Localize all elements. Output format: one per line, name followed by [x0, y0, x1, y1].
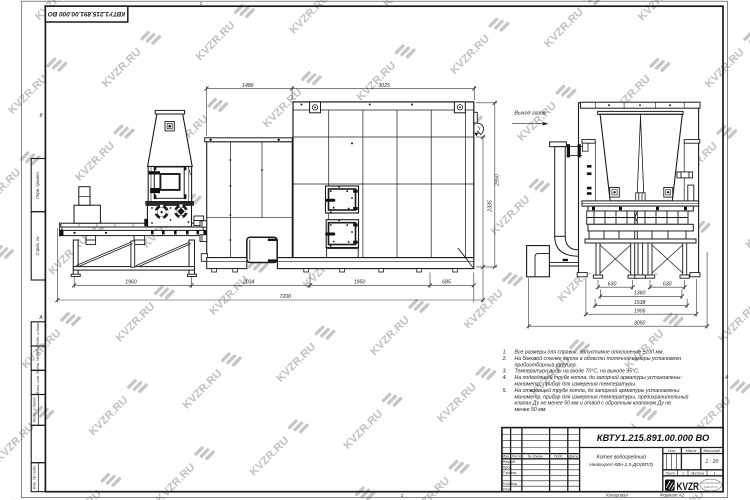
svg-text:Температура воды на входе 70°С: Температура воды на входе 70°С, на выход… [515, 369, 640, 375]
svg-text:На подводящей трубе котла, до: На подводящей трубе котла, до запорной а… [515, 374, 683, 381]
svg-text:Формат А2: Формат А2 [660, 492, 685, 497]
svg-text:Взам. инв. №: Взам. инв. № [35, 369, 40, 394]
svg-text:А: А [724, 375, 729, 381]
svg-text:манометр, прибор для измерения: манометр, прибор для измерения температу… [515, 393, 689, 400]
svg-text:2950: 2950 [495, 174, 501, 187]
svg-text:Все размеры для справок, допус: Все размеры для справок, допустимое откл… [515, 350, 665, 356]
svg-text:Справ. №: Справ. № [35, 236, 40, 255]
svg-text:Подп. и дата: Подп. и дата [35, 321, 40, 347]
svg-text:1538: 1538 [634, 300, 646, 306]
svg-text:Изм.: Изм. [502, 455, 510, 459]
svg-text:Инв. № подл.: Инв. № подл. [32, 465, 37, 490]
svg-text:2.: 2. [502, 356, 507, 362]
svg-text:Утв.: Утв. [503, 488, 511, 492]
svg-text:Лист: Лист [664, 472, 674, 476]
svg-text:Лит.: Лит. [667, 449, 676, 453]
svg-text:1 : 20: 1 : 20 [705, 459, 718, 465]
svg-text:Котел водогрейный: Котел водогрейный [597, 453, 646, 460]
svg-text:685: 685 [442, 280, 451, 286]
svg-text:4.: 4. [503, 375, 507, 381]
svg-text:пробоотборный штуцер.: пробоотборный штуцер. [515, 361, 578, 368]
svg-text:Копировал: Копировал [606, 492, 628, 497]
svg-text:3025: 3025 [378, 83, 390, 89]
svg-text:Дата: Дата [568, 455, 578, 459]
svg-text:На боковой стенке котла в обла: На боковой стенке котла в области топочн… [515, 355, 682, 362]
svg-text:1950: 1950 [354, 280, 366, 286]
svg-text:630: 630 [608, 281, 617, 287]
svg-text:1960: 1960 [125, 280, 137, 286]
svg-text:КВТУ1.215.891.00.000 ВО: КВТУ1.215.891.00.000 ВО [48, 10, 125, 17]
svg-text:Heatexpert-КВн-2,5-ДО(ВПЛ): Heatexpert-КВн-2,5-ДО(ВПЛ) [589, 462, 653, 468]
svg-text:клапан Ду не менее 50 мм и отв: клапан Ду не менее 50 мм и отвод с обрат… [515, 401, 672, 407]
svg-text:манометр, прибор для измерения: манометр, прибор для измерения температу… [515, 382, 637, 388]
svg-text:Масштаб: Масштаб [704, 449, 722, 453]
svg-text:3.: 3. [503, 369, 507, 375]
svg-text:1: 1 [714, 472, 716, 476]
svg-text:Т.контр.: Т.контр. [503, 471, 518, 475]
svg-text:630: 630 [663, 281, 672, 287]
svg-text:KVZR: KVZR [677, 481, 700, 493]
svg-text:1486: 1486 [242, 83, 254, 89]
svg-text:Пров.: Пров. [503, 466, 512, 470]
svg-text:ЗАВОД РУ: ЗАВОД РУ [703, 485, 718, 489]
svg-text:8: 8 [40, 113, 43, 119]
svg-text:7200: 7200 [280, 294, 292, 300]
svg-text:Инв. № дубл.: Инв. № дубл. [35, 346, 40, 371]
svg-text:1906: 1906 [634, 308, 646, 314]
svg-text:Перв. примен.: Перв. примен. [35, 171, 40, 199]
svg-text:2335: 2335 [487, 200, 493, 213]
svg-text:Подп.: Подп. [554, 455, 564, 459]
svg-text:1360: 1360 [634, 291, 646, 297]
svg-text:№ докум.: № докум. [528, 455, 544, 459]
svg-text:А: А [38, 315, 43, 321]
svg-text:Разраб.: Разраб. [503, 460, 516, 464]
svg-text:1: 1 [682, 472, 684, 476]
svg-text:Лист: Лист [511, 455, 521, 459]
svg-text:1.: 1. [503, 350, 507, 356]
svg-text:На отводящей трубе котла, до з: На отводящей трубе котла, до запорной ар… [515, 387, 681, 394]
svg-text:Н.контр.: Н.контр. [503, 482, 518, 486]
svg-text:менее 50 мм.: менее 50 мм. [515, 407, 547, 413]
svg-text:3050: 3050 [634, 320, 646, 326]
svg-text:2034: 2034 [242, 280, 255, 286]
svg-text:КВТУ1.215.891.00.000 ВО: КВТУ1.215.891.00.000 ВО [597, 433, 710, 443]
svg-text:5.: 5. [503, 388, 507, 394]
svg-text:Масса: Масса [686, 449, 697, 453]
svg-text:Выход газов: Выход газов [514, 111, 546, 117]
svg-text:Листов: Листов [690, 472, 704, 476]
svg-text:Подп. и дата: Подп. и дата [32, 397, 37, 423]
